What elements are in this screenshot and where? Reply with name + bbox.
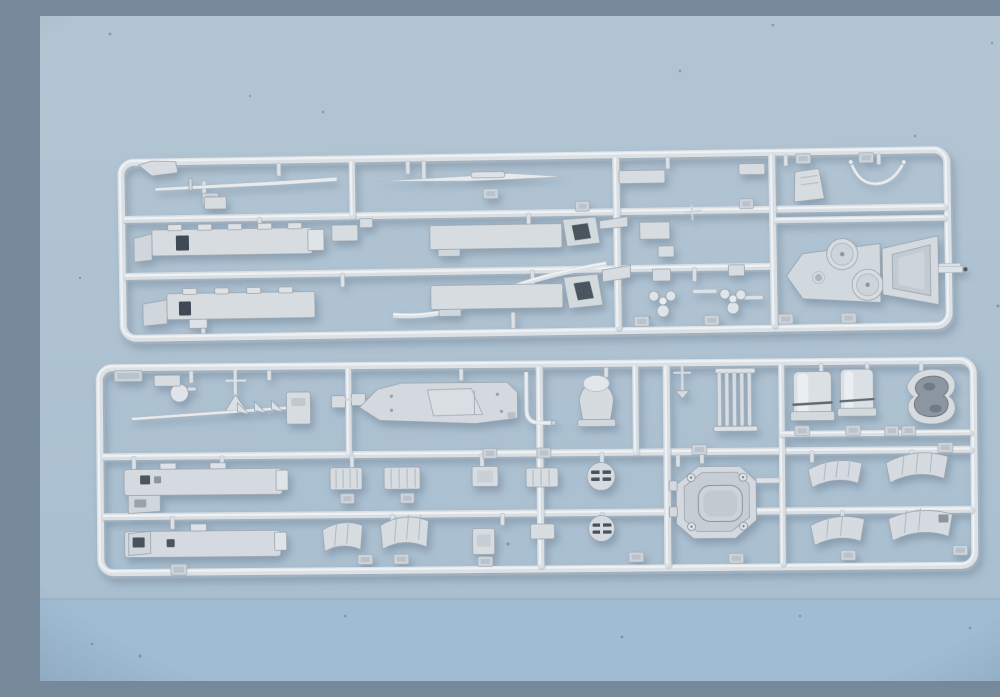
sprue-photo-canvas [40, 16, 1000, 681]
model-kit-photo [40, 16, 1000, 681]
vignette-overlay [40, 16, 1000, 681]
